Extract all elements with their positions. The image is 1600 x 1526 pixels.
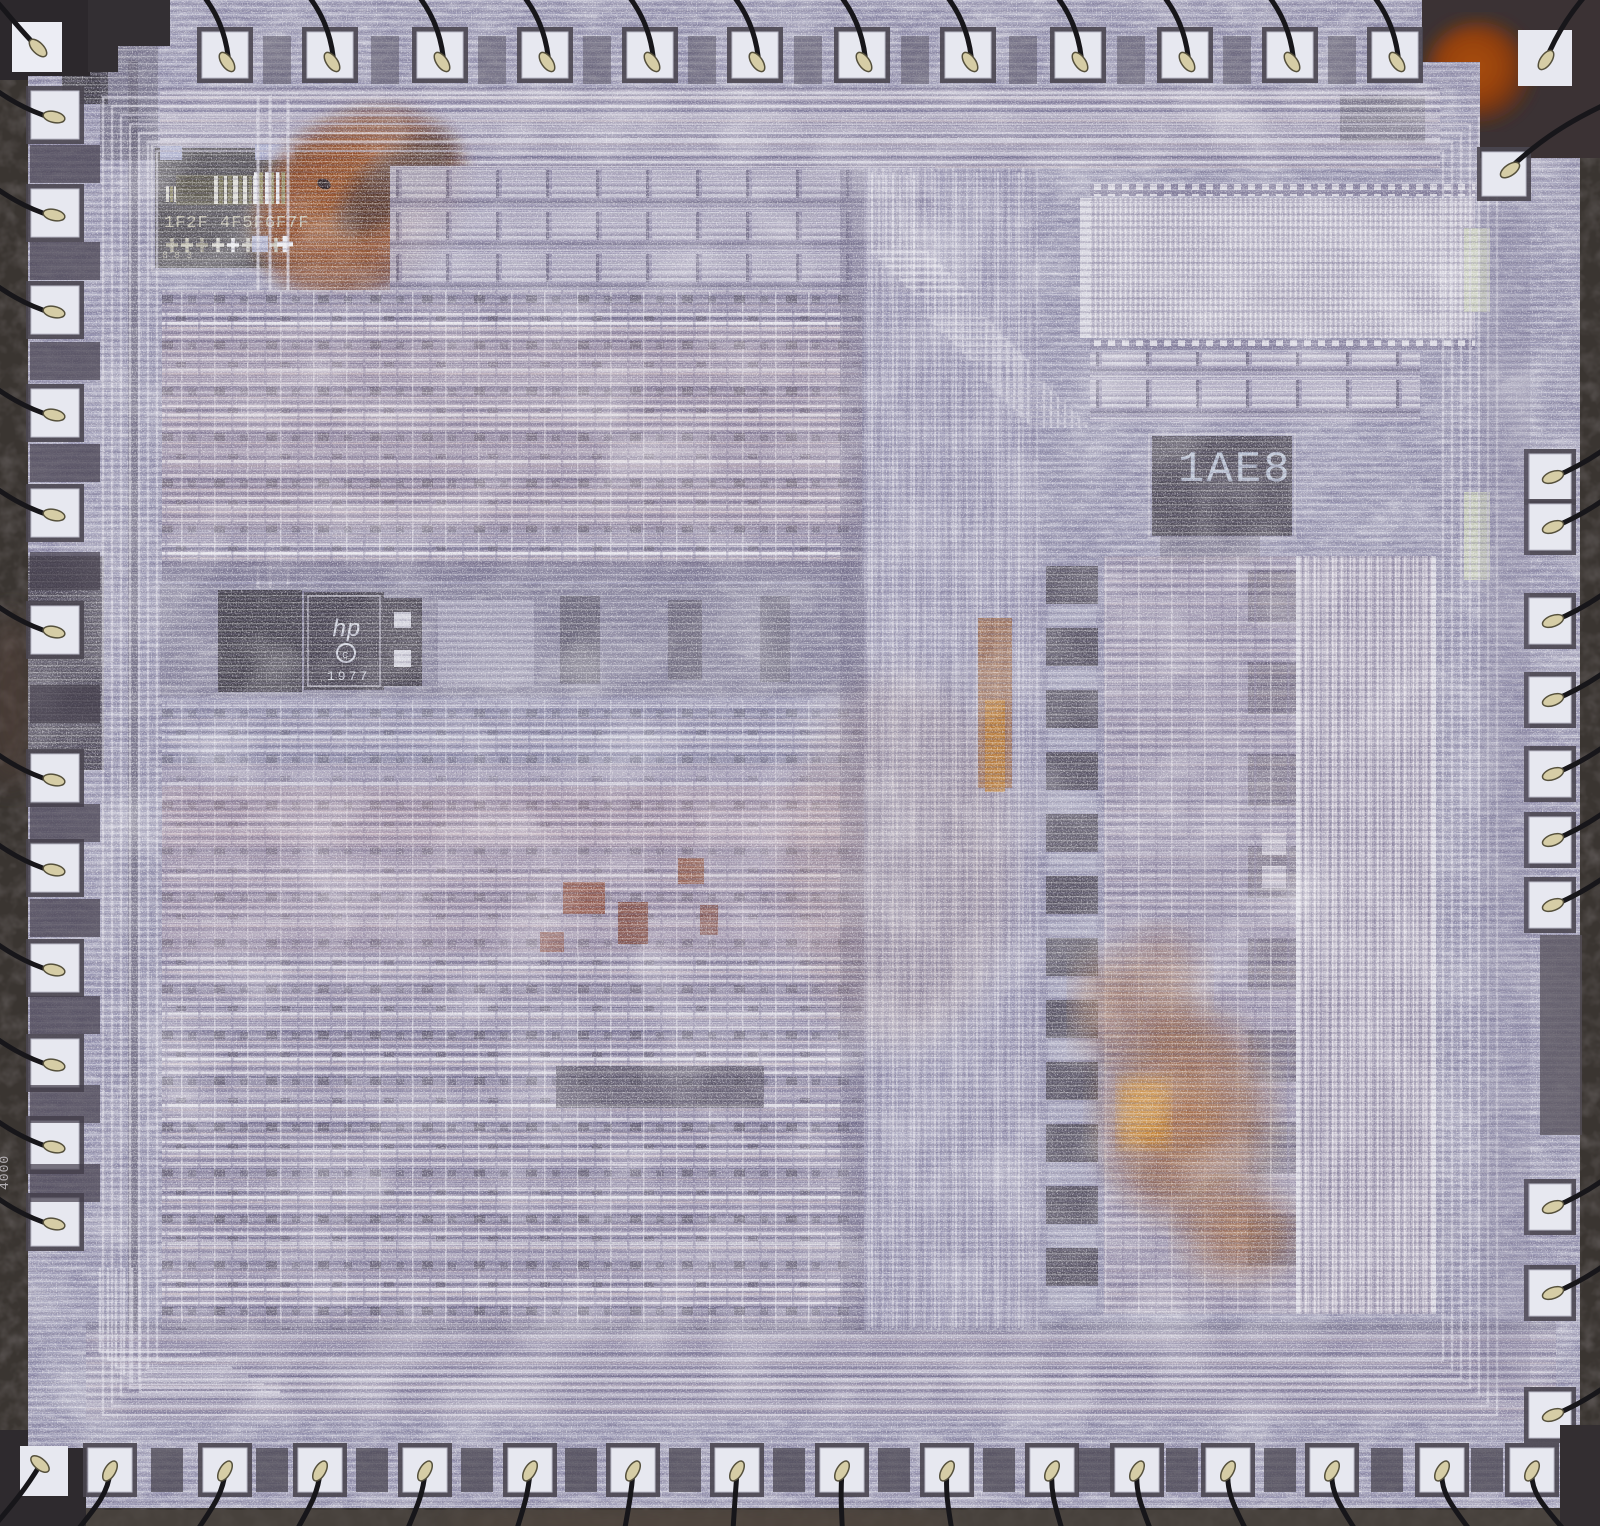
svg-text:4000: 4000 (0, 1155, 12, 1190)
